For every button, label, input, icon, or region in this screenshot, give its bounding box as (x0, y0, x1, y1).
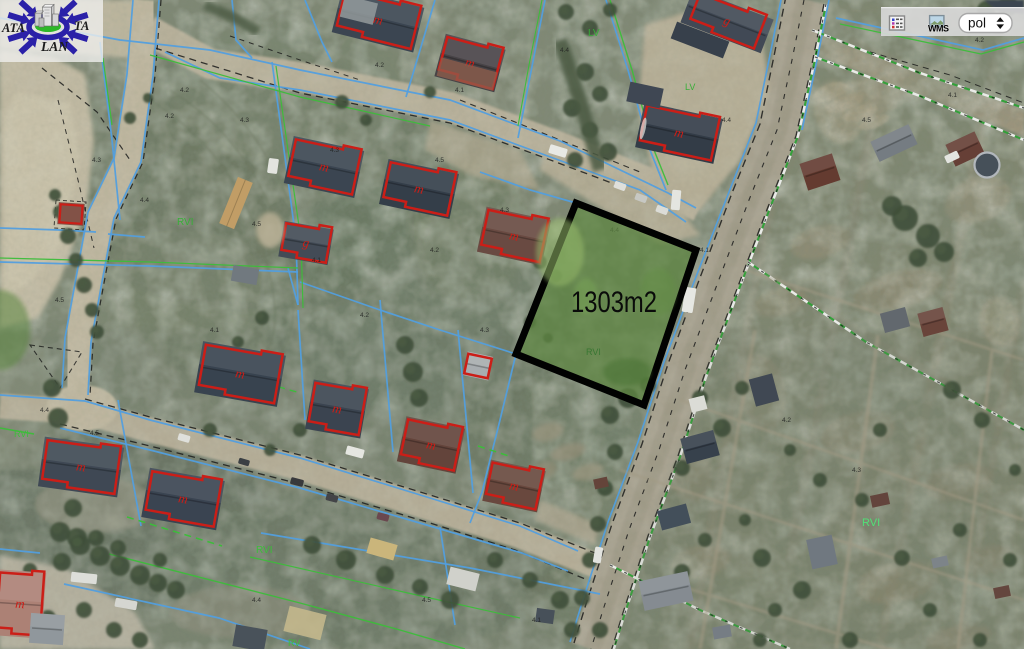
svg-text:pol: pol (968, 16, 986, 31)
svg-text:WMS: WMS (928, 24, 949, 34)
svg-text:LAN: LAN (40, 39, 69, 54)
svg-text:ATA: ATA (1, 21, 25, 35)
svg-text:TA: TA (74, 19, 89, 33)
